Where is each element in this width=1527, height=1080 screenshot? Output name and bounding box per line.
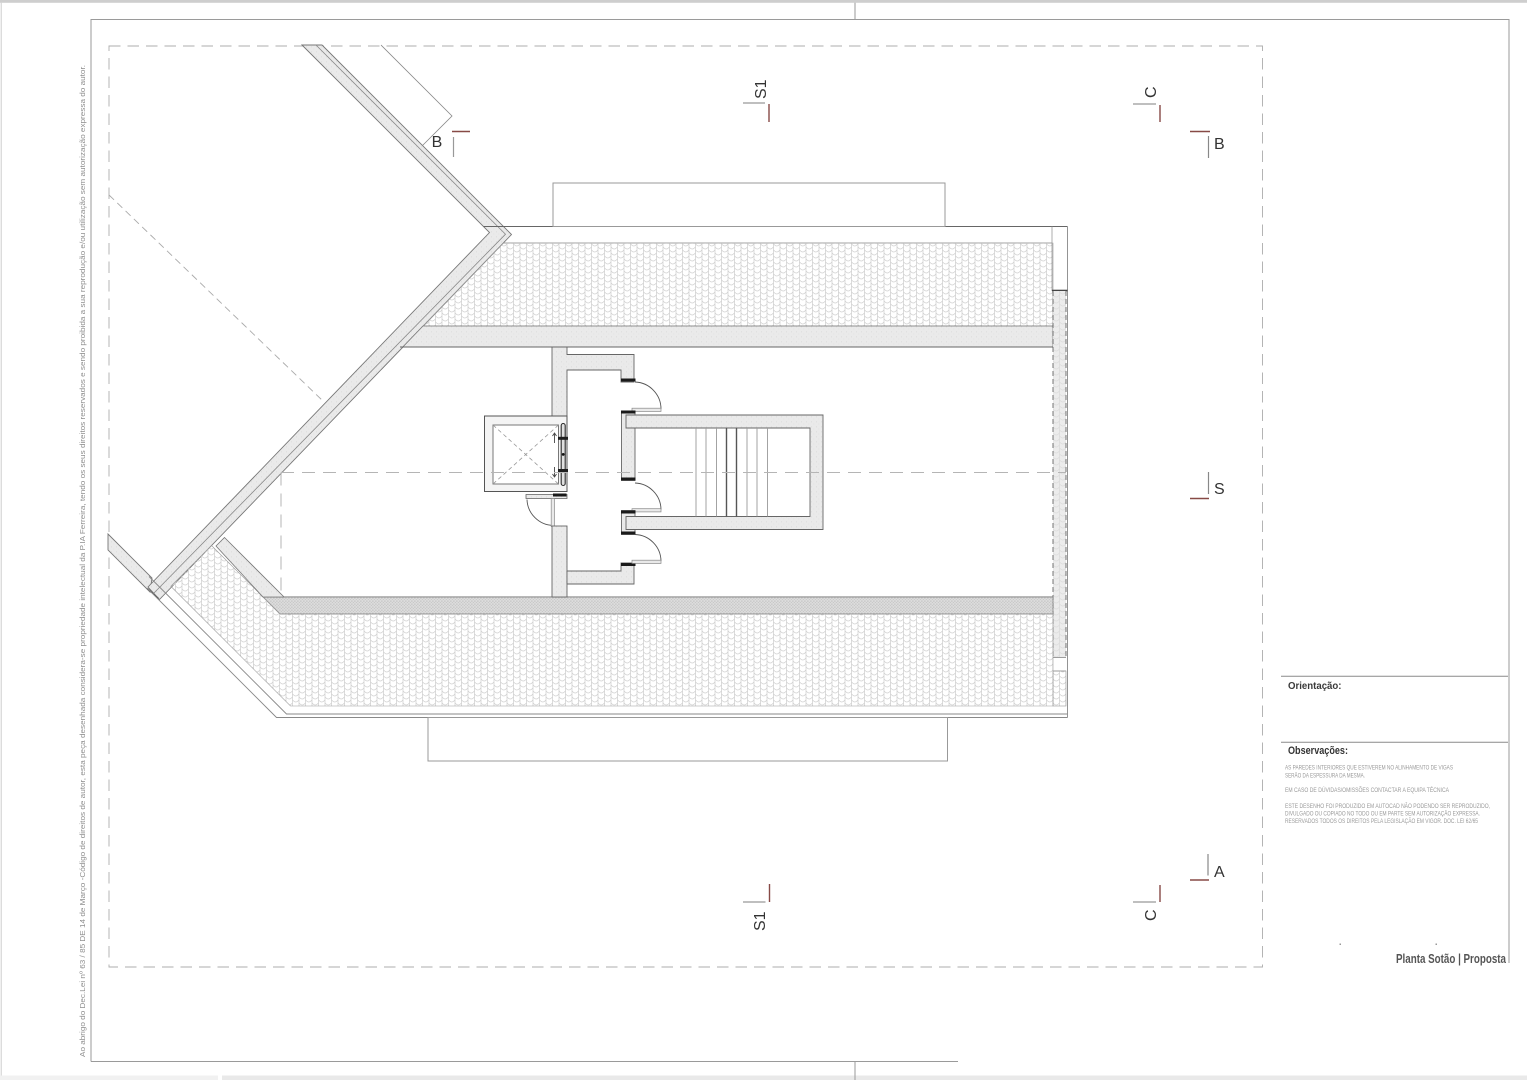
svg-text:Planta Sotão | Proposta: Planta Sotão | Proposta [1396, 951, 1507, 966]
svg-text:A: A [1214, 864, 1225, 881]
svg-text:B: B [432, 134, 443, 151]
svg-text:S1: S1 [753, 79, 770, 99]
svg-text:RESERVADOS TODOS OS DIREITOS P: RESERVADOS TODOS OS DIREITOS PELA LEGISL… [1285, 818, 1478, 825]
svg-text:B: B [1214, 136, 1225, 153]
svg-text:S: S [1214, 481, 1225, 498]
svg-text:S1: S1 [752, 911, 769, 931]
svg-text:ESTE DESENHO FOI PRODUZIDO EM: ESTE DESENHO FOI PRODUZIDO EM AUTOCAD NÃ… [1285, 803, 1490, 810]
svg-text:EM CASO DE DÚVIDAS/OMISSÕES CO: EM CASO DE DÚVIDAS/OMISSÕES CONTACTAR A … [1285, 787, 1450, 794]
svg-text:DIVULGADO OU COPIADO NO TODO O: DIVULGADO OU COPIADO NO TODO OU EM PARTE… [1285, 811, 1480, 818]
svg-text:Orientação:: Orientação: [1288, 680, 1342, 692]
svg-text:Ao abrigo do Dec.Lei nº 63 / 8: Ao abrigo do Dec.Lei nº 63 / 85 DE 14 de… [78, 65, 87, 1057]
svg-text:SERÃO DA ESPESSURA DA MESMA.: SERÃO DA ESPESSURA DA MESMA. [1285, 773, 1365, 780]
svg-text:AS PAREDES INTERIORES QUE ESTI: AS PAREDES INTERIORES QUE ESTIVEREM NO A… [1285, 765, 1453, 772]
svg-text:C: C [1143, 86, 1160, 98]
svg-text:Observações:: Observações: [1288, 745, 1348, 757]
svg-text:C: C [1143, 909, 1160, 921]
